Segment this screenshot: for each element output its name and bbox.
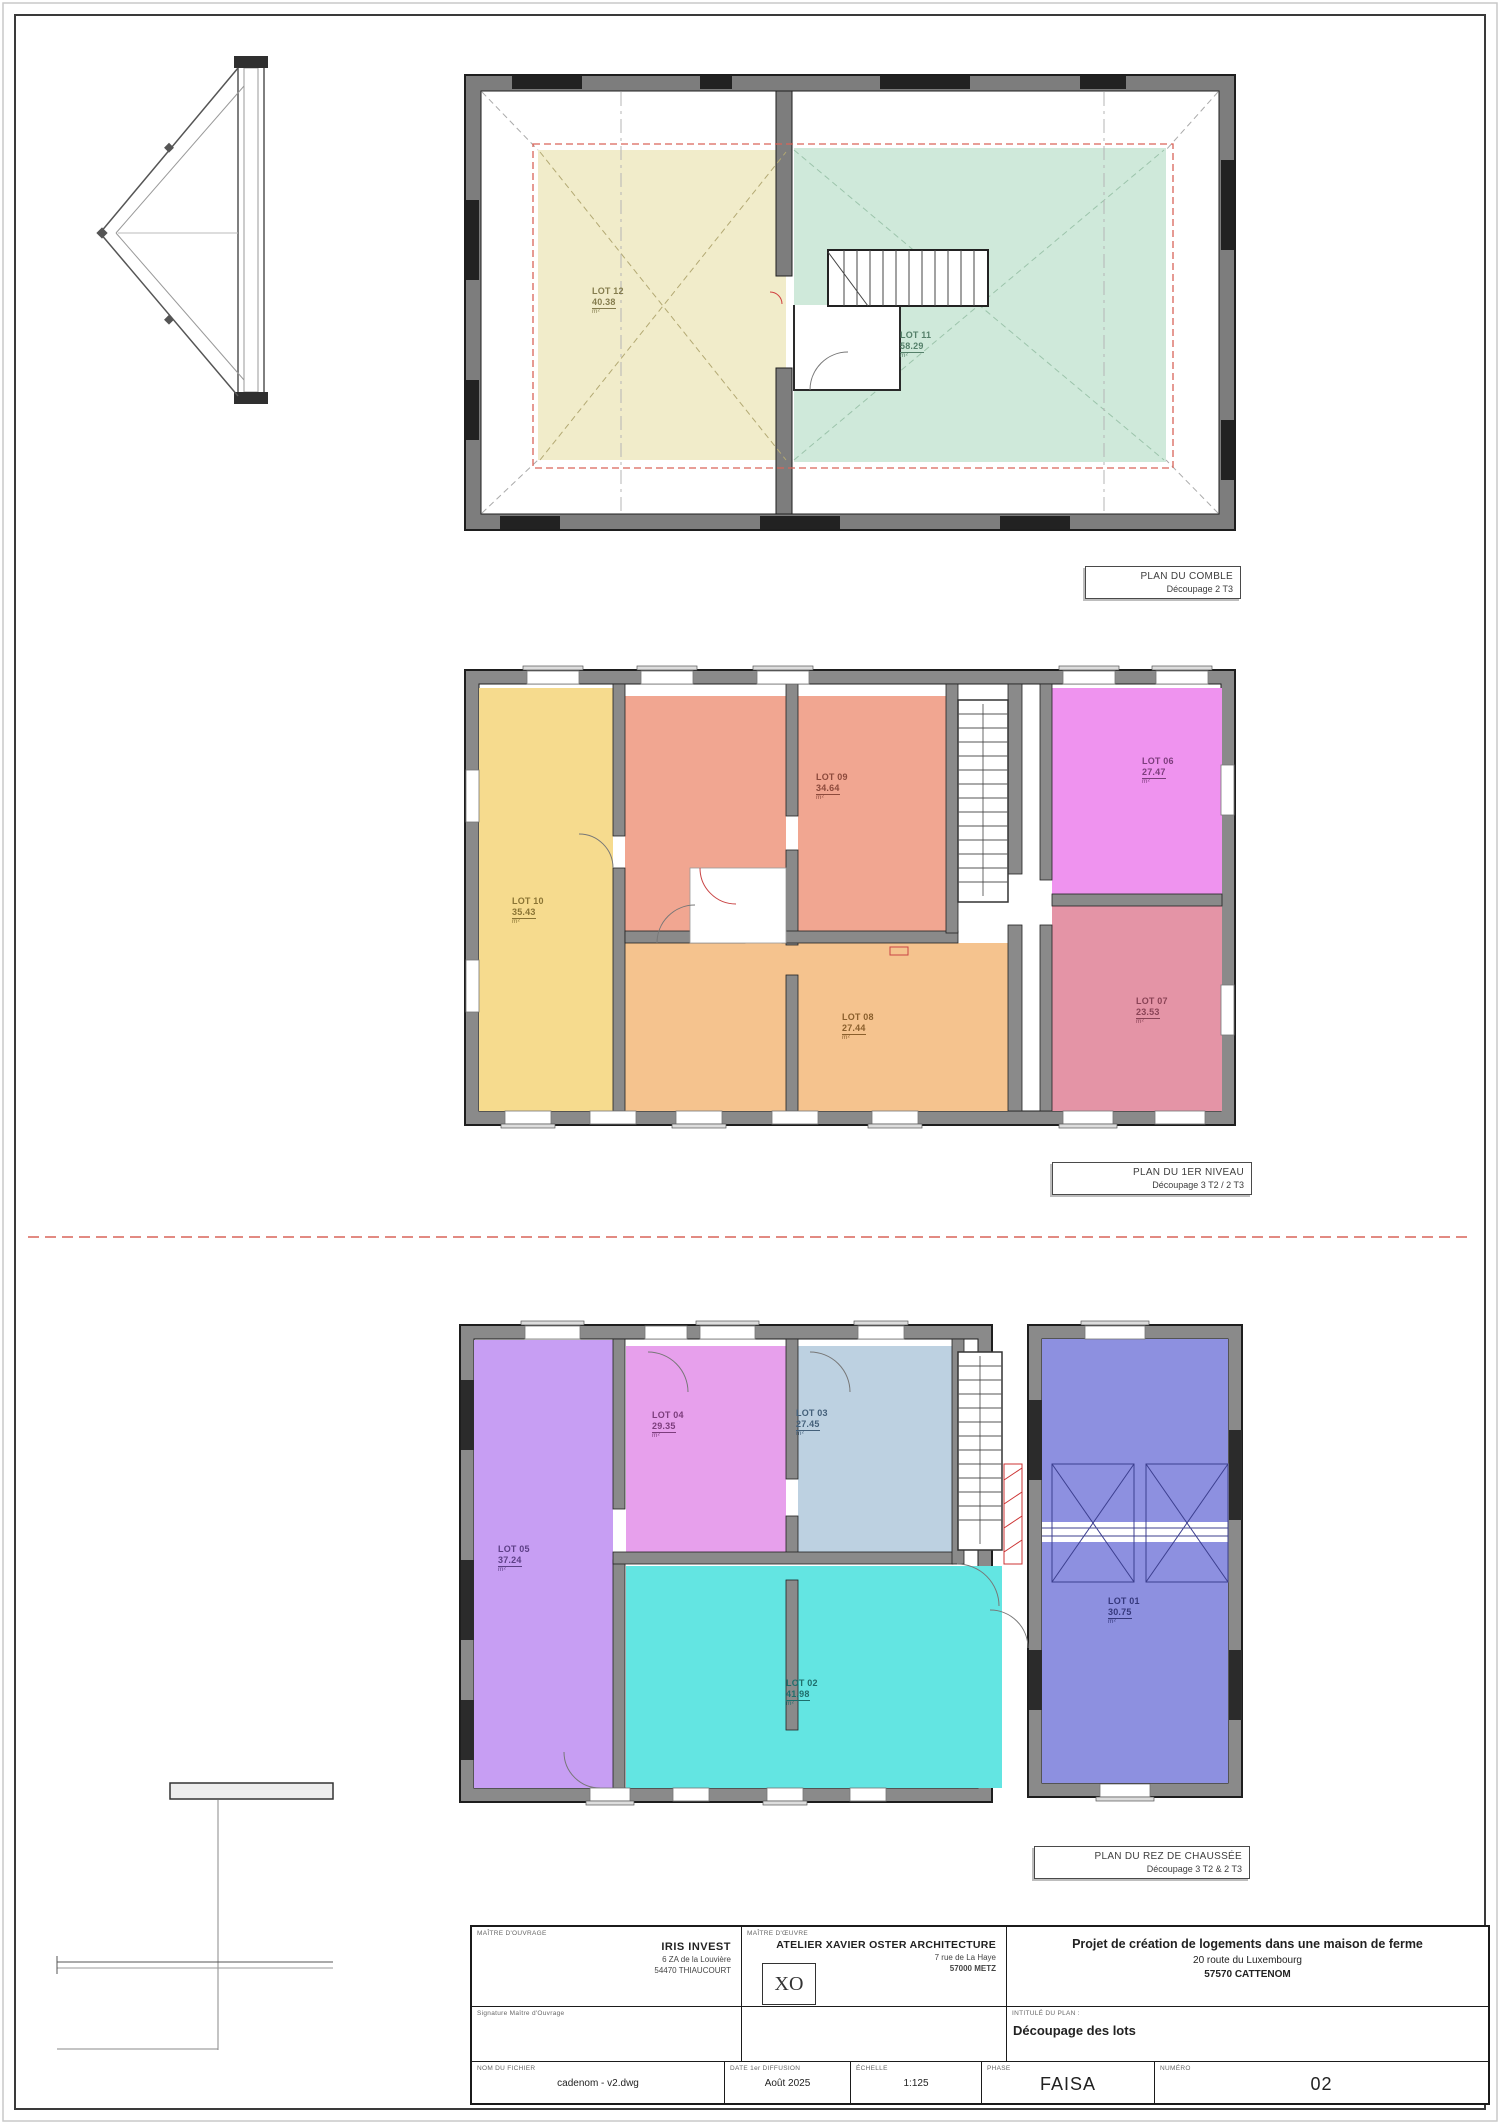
plan-name-cell: INTITULÉ DU PLAN : Découpage des lots (1007, 2007, 1488, 2062)
date-cell: DATE 1er DIFFUSION Août 2025 (725, 2062, 851, 2103)
signature-cell: Signature Maître d'Ouvrage (472, 2007, 742, 2062)
number-value: 02 (1155, 2074, 1488, 2095)
scale-label: ÉCHELLE (856, 2065, 888, 2072)
owner-name: IRIS INVEST (654, 1941, 731, 1953)
lot-id: LOT 01 (1108, 1596, 1140, 1607)
number-cell: NUMÉRO 02 (1155, 2062, 1488, 2103)
plan-name-value: Découpage des lots (1013, 2023, 1136, 2038)
lot-id: LOT 05 (498, 1544, 530, 1555)
room-lot-10 (479, 688, 613, 1111)
lot-area: 34.64 (816, 783, 840, 795)
architect-name: ATELIER XAVIER OSTER ARCHITECTURE (776, 1939, 996, 1951)
lot-id: LOT 11 (900, 330, 931, 341)
lot-area-unit: m² (900, 353, 931, 360)
lot-id: LOT 02 (786, 1678, 818, 1689)
file-label: NOM DU FICHIER (477, 2065, 535, 2072)
room-lot-09-b (798, 696, 946, 931)
ground-floor-plan (460, 1321, 1242, 1805)
lot-label: LOT 10 35.43 m² (512, 896, 544, 925)
lot-id: LOT 08 (842, 1012, 874, 1023)
phase-value: FAISA (982, 2074, 1154, 2095)
project-city: 57570 CATTENOM (1007, 1969, 1488, 1980)
owner-address-1: 6 ZA de la Louvière (654, 1955, 731, 1964)
phase-cell: PHASE FAISA (982, 2062, 1155, 2103)
plan-name-label: INTITULÉ DU PLAN : (1012, 2010, 1080, 2017)
lot-label: LOT 05 37.24 m² (498, 1544, 530, 1573)
lot-area: 35.43 (512, 907, 536, 919)
lot-id: LOT 12 (592, 286, 624, 297)
lot-area-unit: m² (512, 919, 544, 926)
lot-area: 29.35 (652, 1421, 676, 1433)
caption-subtitle: Découpage 2 T3 (1093, 584, 1233, 594)
lot-area-unit: m² (652, 1433, 684, 1440)
lot-area: 27.44 (842, 1023, 866, 1035)
lot-label: LOT 03 27.45 m² (796, 1408, 828, 1437)
vestibule (690, 868, 786, 943)
lot-id: LOT 10 (512, 896, 544, 907)
scale-value: 1:125 (851, 2078, 981, 2089)
empty-cell (742, 2007, 1007, 2062)
file-value: cadenom - v2.dwg (472, 2078, 724, 2089)
room-lot-06 (1052, 688, 1222, 894)
title-block: MAÎTRE D'OUVRAGE IRIS INVEST 6 ZA de la … (470, 1925, 1490, 2105)
lot-label: LOT 04 29.35 m² (652, 1410, 684, 1439)
first-floor-caption: PLAN DU 1ER NIVEAU Découpage 3 T2 / 2 T3 (1052, 1162, 1252, 1195)
room-lot-02 (626, 1566, 1002, 1788)
caption-subtitle: Découpage 3 T2 / 2 T3 (1060, 1180, 1244, 1190)
scale-cell: ÉCHELLE 1:125 (851, 2062, 982, 2103)
lot-area-unit: m² (592, 309, 624, 316)
stairwell-rdc (958, 1352, 1002, 1550)
lot-area-unit: m² (1142, 779, 1174, 786)
date-label: DATE 1er DIFFUSION (730, 2065, 800, 2072)
project-cell: Projet de création de logements dans une… (1007, 1927, 1488, 2007)
architect-cell: MAÎTRE D'ŒUVRE XO ATELIER XAVIER OSTER A… (742, 1927, 1007, 2007)
lot-label: LOT 02 41.98 m² (786, 1678, 818, 1707)
lot-area: 27.47 (1142, 767, 1166, 779)
owner-cell: MAÎTRE D'OUVRAGE IRIS INVEST 6 ZA de la … (472, 1927, 742, 2007)
caption-title: PLAN DU 1ER NIVEAU (1060, 1167, 1244, 1178)
lot-area-unit: m² (1108, 1619, 1140, 1626)
lot-id: LOT 04 (652, 1410, 684, 1421)
lot-area: 40.38 (592, 297, 616, 309)
lot-area: 23.53 (1136, 1007, 1160, 1019)
architect-address-2: 57000 METZ (776, 1964, 996, 1973)
caption-subtitle: Découpage 3 T2 & 2 T3 (1042, 1864, 1242, 1874)
architect-address-1: 7 rue de La Haye (776, 1953, 996, 1962)
attic-hall (794, 305, 900, 390)
lot-id: LOT 06 (1142, 756, 1174, 767)
lot-label: LOT 09 34.64 m² (816, 772, 848, 801)
lot-area-unit: m² (786, 1701, 818, 1708)
lot-area-unit: m² (1136, 1019, 1168, 1026)
plan-linework (0, 0, 1500, 2124)
caption-title: PLAN DU COMBLE (1093, 571, 1233, 582)
ground-floor-caption: PLAN DU REZ DE CHAUSSÉE Découpage 3 T2 &… (1034, 1846, 1250, 1879)
phase-label: PHASE (987, 2065, 1011, 2072)
lot-label: LOT 01 30.75 m² (1108, 1596, 1140, 1625)
drawing-sheet: LOT 12 40.38 m² LOT 11 58.29 m² LOT 10 3… (0, 0, 1500, 2124)
room-lot-03 (798, 1346, 952, 1552)
attic-plan (465, 75, 1235, 530)
lot-area: 58.29 (900, 341, 924, 353)
lot-area: 41.98 (786, 1689, 810, 1701)
room-lot-08 (625, 943, 1008, 1111)
stairwell (958, 700, 1008, 902)
lot-area-unit: m² (842, 1035, 874, 1042)
file-cell: NOM DU FICHIER cadenom - v2.dwg (472, 2062, 725, 2103)
gable-elevation (96, 56, 268, 404)
room-lot-01 (1042, 1339, 1228, 1783)
adjacent-drawing-lines (57, 1783, 333, 2050)
lot-area: 30.75 (1108, 1607, 1132, 1619)
lot-id: LOT 07 (1136, 996, 1168, 1007)
architect-label: MAÎTRE D'ŒUVRE (747, 1930, 808, 1937)
caption-title: PLAN DU REZ DE CHAUSSÉE (1042, 1851, 1242, 1862)
project-address: 20 route du Luxembourg (1007, 1955, 1488, 1966)
lot-area: 37.24 (498, 1555, 522, 1567)
lot-area-unit: m² (816, 795, 848, 802)
lot-area: 27.45 (796, 1419, 820, 1431)
owner-address-2: 54470 THIAUCOURT (654, 1966, 731, 1975)
attic-plan-caption: PLAN DU COMBLE Découpage 2 T3 (1085, 566, 1241, 599)
project-title: Projet de création de logements dans une… (1007, 1937, 1488, 1951)
red-duct (1004, 1464, 1022, 1564)
date-value: Août 2025 (725, 2078, 850, 2089)
lot-id: LOT 03 (796, 1408, 828, 1419)
first-floor-plan (465, 666, 1235, 1128)
lot-label: LOT 07 23.53 m² (1136, 996, 1168, 1025)
lot-id: LOT 09 (816, 772, 848, 783)
lot-label: LOT 11 58.29 m² (900, 330, 931, 359)
owner-label: MAÎTRE D'OUVRAGE (477, 1930, 547, 1937)
room-lot-04 (626, 1346, 786, 1552)
lot-label: LOT 08 27.44 m² (842, 1012, 874, 1041)
signature-label: Signature Maître d'Ouvrage (477, 2010, 564, 2017)
room-lot-05 (474, 1340, 613, 1788)
lot-label: LOT 12 40.38 m² (592, 286, 624, 315)
lot-label: LOT 06 27.47 m² (1142, 756, 1174, 785)
lot-area-unit: m² (796, 1431, 828, 1438)
number-label: NUMÉRO (1160, 2065, 1191, 2072)
lot-area-unit: m² (498, 1567, 530, 1574)
